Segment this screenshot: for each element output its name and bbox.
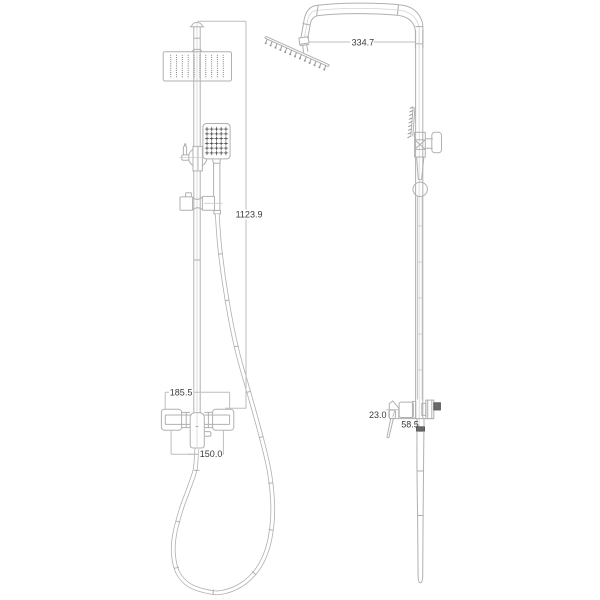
svg-text:185.5: 185.5 bbox=[170, 388, 193, 398]
svg-text:58.5: 58.5 bbox=[401, 419, 419, 429]
svg-text:150.0: 150.0 bbox=[200, 449, 223, 459]
svg-text:23.0: 23.0 bbox=[369, 410, 387, 420]
svg-text:1123.9: 1123.9 bbox=[236, 210, 263, 220]
svg-text:334.7: 334.7 bbox=[352, 37, 375, 47]
